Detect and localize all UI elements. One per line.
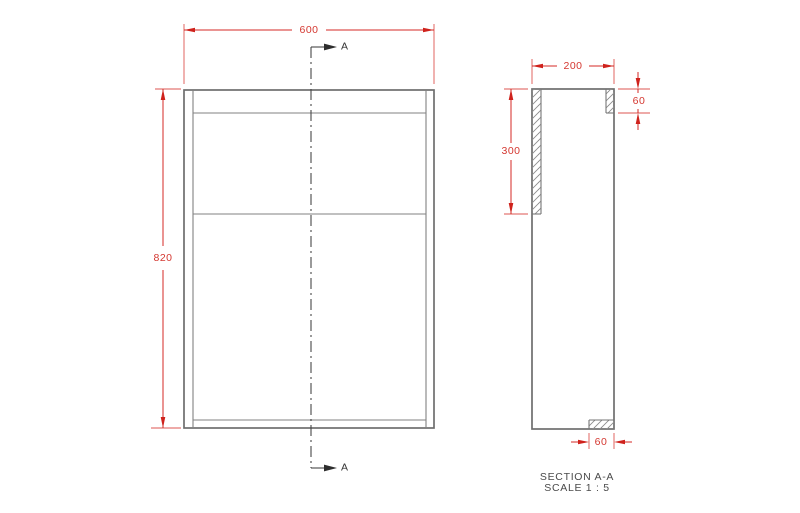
section-marker-bottom-label: A (341, 462, 348, 474)
technical-drawing-canvas: 600 820 A A (0, 0, 800, 513)
section-top-rail-dimension-label: 60 (633, 95, 646, 107)
dim-arrow-down-icon (161, 417, 166, 428)
dim-arrow-left-icon (614, 440, 625, 445)
section-panel-dimension: 300 (501, 89, 528, 214)
dim-arrow-up-icon (509, 89, 514, 100)
section-bottom-rail-dimension-label: 60 (595, 436, 608, 448)
front-view-outline (184, 90, 434, 428)
front-height-dimension: 820 (151, 89, 181, 428)
section-top-rail-dimension: 60 (618, 72, 650, 130)
section-depth-dimension: 200 (532, 59, 614, 84)
section-outline (532, 89, 614, 429)
section-bottom-rail-dimension: 60 (571, 433, 632, 449)
section-bottom-rail-hatch (589, 420, 614, 429)
dim-arrow-right-icon (578, 440, 589, 445)
section-cut-line: A A (311, 41, 348, 474)
dim-arrow-left-icon (184, 28, 195, 33)
dim-arrow-up-icon (161, 89, 166, 100)
section-back-panel-hatch (532, 89, 541, 214)
front-width-dimension-label: 600 (299, 24, 318, 36)
section-view (532, 89, 614, 429)
dim-arrow-down-icon (636, 78, 641, 89)
front-height-dimension-label: 820 (153, 252, 172, 264)
dim-arrow-up-icon (636, 113, 641, 124)
dim-arrow-right-icon (423, 28, 434, 33)
section-scale: SCALE 1 : 5 (544, 482, 609, 494)
front-width-dimension: 600 (184, 24, 434, 84)
section-arrow-top-icon (324, 44, 337, 51)
dim-arrow-down-icon (509, 203, 514, 214)
drawing-sheet: 600 820 A A (0, 0, 800, 513)
section-top-rail-hatch (606, 89, 614, 113)
section-depth-dimension-label: 200 (563, 60, 582, 72)
dim-arrow-right-icon (603, 64, 614, 69)
section-marker-top-label: A (341, 41, 348, 53)
dim-arrow-left-icon (532, 64, 543, 69)
section-arrow-bottom-icon (324, 465, 337, 472)
section-panel-dimension-label: 300 (501, 145, 520, 157)
section-title-block: SECTION A-A SCALE 1 : 5 (540, 471, 614, 494)
front-view (184, 90, 434, 428)
